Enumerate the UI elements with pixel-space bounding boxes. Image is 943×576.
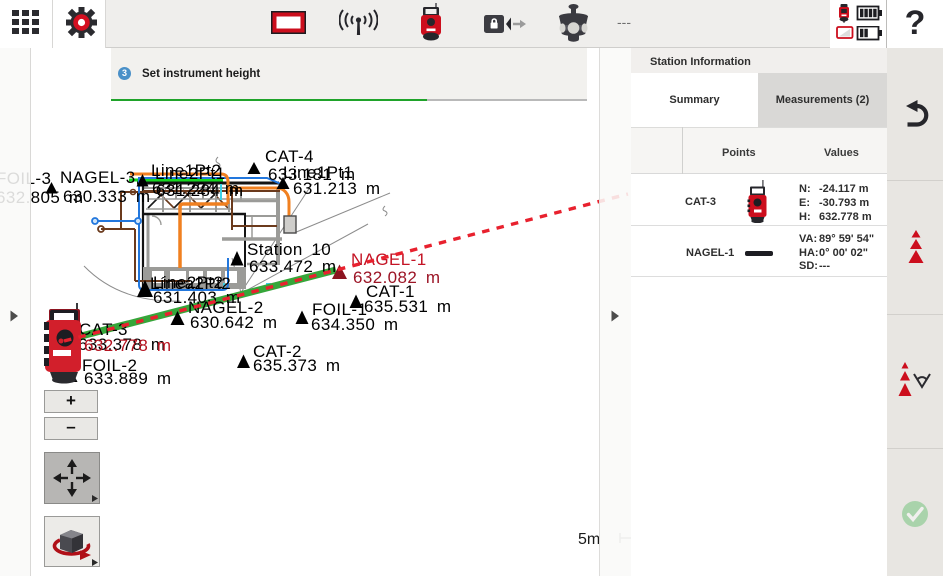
svg-text:633.472 m: 633.472 m bbox=[249, 257, 336, 276]
svg-text:632.082 m: 632.082 m bbox=[353, 268, 440, 287]
svg-text:5m: 5m bbox=[578, 531, 600, 548]
svg-text:635.373 m: 635.373 m bbox=[253, 356, 340, 375]
svg-text:631.284 m: 631.284 m bbox=[156, 181, 243, 200]
svg-text:630.333 m: 630.333 m bbox=[63, 187, 150, 206]
svg-text:632.778 m: 632.778 m bbox=[84, 336, 171, 355]
svg-text:NAGEL-3: NAGEL-3 bbox=[60, 168, 136, 187]
svg-text:630.642 m: 630.642 m bbox=[190, 313, 277, 332]
svg-text:633.889 m: 633.889 m bbox=[84, 369, 171, 388]
svg-text:634.350 m: 634.350 m bbox=[311, 315, 398, 334]
svg-text:631.213 m: 631.213 m bbox=[293, 179, 380, 198]
svg-text:635.531 m: 635.531 m bbox=[364, 297, 451, 316]
svg-text:NAGEL-1: NAGEL-1 bbox=[351, 250, 427, 269]
